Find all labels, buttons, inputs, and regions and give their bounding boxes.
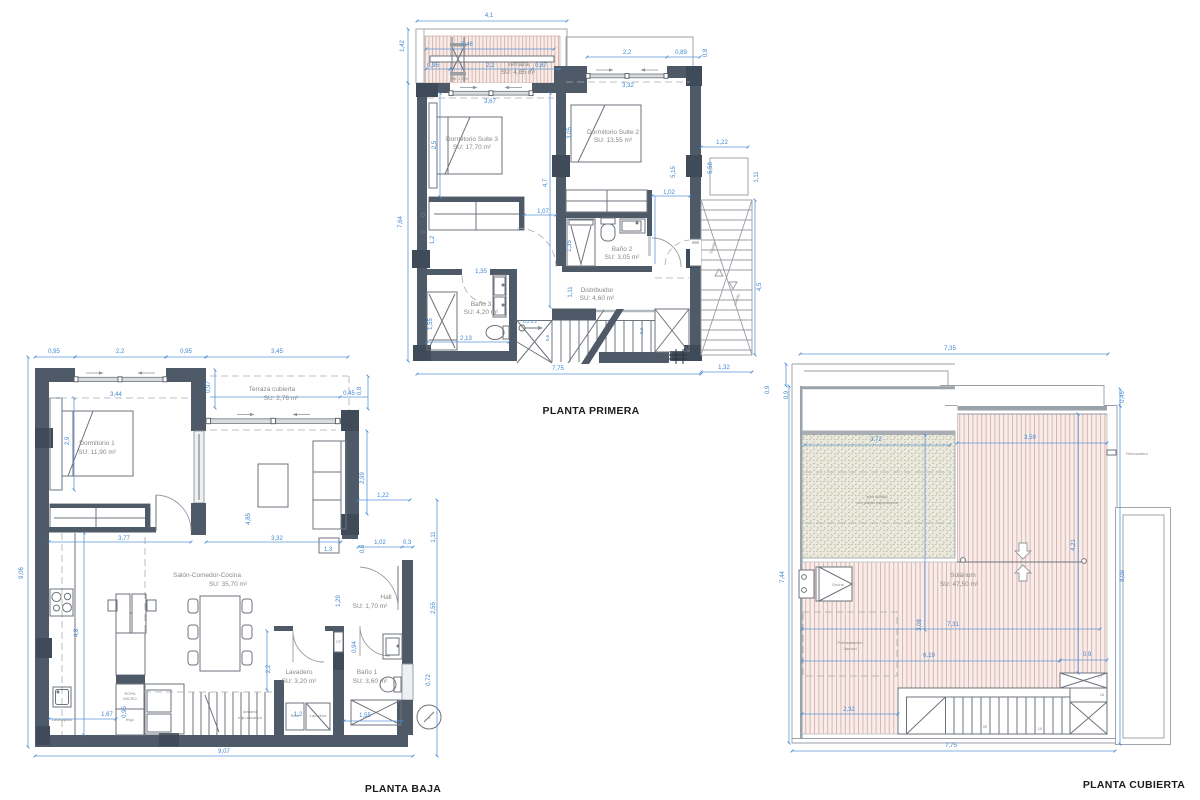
svg-text:3,32: 3,32 [622, 83, 634, 89]
svg-text:0,9: 0,9 [1083, 652, 1092, 658]
svg-text:0,94: 0,94 [352, 641, 358, 653]
svg-text:área edificio: área edificio [866, 494, 888, 499]
svg-text:SU: 47,50 m²: SU: 47,50 m² [940, 581, 979, 588]
svg-text:Salón-Comedor-Cocina: Salón-Comedor-Cocina [173, 572, 241, 579]
svg-text:5,15: 5,15 [671, 166, 677, 178]
svg-text:2,2: 2,2 [623, 50, 632, 56]
svg-text:2,2: 2,2 [266, 664, 272, 673]
svg-text:4,85: 4,85 [246, 513, 252, 525]
svg-text:8,09: 8,09 [1120, 570, 1126, 582]
svg-text:3,77: 3,77 [118, 536, 130, 542]
svg-text:0,6: 0,6 [360, 544, 366, 553]
svg-text:3,45: 3,45 [271, 349, 283, 355]
svg-text:0,2: 0,2 [639, 327, 644, 334]
svg-text:2,99: 2,99 [360, 472, 366, 484]
svg-text:Baño 3: Baño 3 [471, 301, 492, 308]
svg-text:0,2 0,2: 0,2 0,2 [523, 319, 537, 324]
svg-text:MICRO: MICRO [123, 696, 136, 701]
svg-text:10: 10 [1038, 726, 1043, 731]
svg-text:1,35: 1,35 [567, 240, 573, 252]
svg-text:3,08: 3,08 [917, 619, 923, 631]
svg-text:SU: 11,90 m²: SU: 11,90 m² [78, 449, 117, 456]
svg-text:Terraza: Terraza [507, 61, 529, 68]
svg-text:6,19: 6,19 [923, 653, 935, 659]
svg-text:Pte: 1,0%: Pte: 1,0% [450, 76, 468, 81]
svg-text:3,05: 3,05 [567, 127, 573, 139]
svg-text:Ducha: Ducha [832, 582, 844, 587]
svg-text:1,55: 1,55 [428, 318, 434, 330]
svg-text:0,9: 0,9 [784, 390, 790, 399]
svg-text:PLANTA CUBIERTA: PLANTA CUBIERTA [1083, 779, 1185, 791]
svg-text:Lavadero: Lavadero [285, 669, 312, 676]
svg-text:1,02: 1,02 [663, 190, 675, 196]
svg-text:1,35: 1,35 [475, 269, 487, 275]
svg-text:SU: 4,60 m²: SU: 4,60 m² [580, 295, 616, 302]
svg-text:PLANTA BAJA: PLANTA BAJA [365, 783, 441, 795]
svg-text:1,42: 1,42 [400, 40, 406, 52]
svg-text:SU: 3,60 m²: SU: 3,60 m² [353, 678, 389, 685]
svg-text:Lavavajillas: Lavavajillas [52, 717, 73, 722]
svg-text:1,55: 1,55 [359, 713, 371, 719]
svg-text:7,44: 7,44 [780, 571, 786, 583]
svg-text:2,5: 2,5 [432, 140, 438, 149]
svg-text:PLANTA PRIMERA: PLANTA PRIMERA [543, 405, 640, 417]
svg-text:4,8: 4,8 [74, 628, 80, 637]
svg-text:2,2: 2,2 [116, 349, 125, 355]
svg-text:CF: CF [336, 639, 342, 644]
svg-text:0,3: 0,3 [403, 540, 412, 546]
svg-text:Terraza cubierta: Terraza cubierta [249, 386, 296, 393]
svg-text:0,95: 0,95 [122, 706, 128, 718]
svg-text:SU: 17,70 m²: SU: 17,70 m² [453, 144, 492, 151]
svg-text:SU: 4,20 m²: SU: 4,20 m² [464, 309, 500, 316]
svg-text:SU: 4,85 m²: SU: 4,85 m² [501, 69, 537, 76]
svg-text:0,72: 0,72 [426, 674, 432, 686]
svg-text:7,31: 7,31 [947, 622, 959, 628]
svg-text:3,67: 3,67 [484, 99, 496, 105]
svg-text:0,45: 0,45 [343, 391, 355, 397]
svg-text:1,29: 1,29 [336, 595, 342, 607]
svg-text:Lavadora: Lavadora [310, 713, 327, 718]
svg-text:Solárium: Solárium [950, 572, 976, 579]
svg-text:bajo escalera: bajo escalera [238, 715, 263, 720]
svg-text:4,21: 4,21 [1071, 539, 1077, 551]
svg-text:Baño 2: Baño 2 [612, 246, 633, 253]
svg-text:SU: 1,70 m²: SU: 1,70 m² [353, 603, 389, 610]
svg-text:3,46: 3,46 [461, 42, 473, 48]
svg-text:Preinstalación: Preinstalación [837, 640, 862, 645]
svg-text:4,5: 4,5 [757, 282, 763, 291]
svg-text:2,32: 2,32 [843, 707, 855, 713]
svg-text:1,67: 1,67 [101, 712, 113, 718]
svg-text:1,32: 1,32 [718, 365, 730, 371]
svg-text:SU: 2,76 m²: SU: 2,76 m² [264, 395, 300, 402]
svg-text:armario: armario [243, 709, 257, 714]
svg-text:3,32: 3,32 [271, 536, 283, 542]
svg-text:0,45: 0,45 [1120, 391, 1126, 403]
svg-text:2,55: 2,55 [431, 602, 437, 614]
svg-text:0,8: 0,8 [357, 386, 363, 395]
svg-text:17: 17 [1098, 674, 1103, 679]
svg-text:1,2: 1,2 [430, 235, 436, 244]
svg-text:SU: 13,55 m²: SU: 13,55 m² [594, 137, 633, 144]
svg-text:7,75: 7,75 [552, 366, 564, 372]
svg-text:1,11: 1,11 [568, 286, 574, 298]
svg-text:7,75: 7,75 [945, 743, 957, 749]
svg-text:0,97: 0,97 [206, 381, 212, 393]
svg-text:2,2: 2,2 [486, 63, 495, 69]
svg-text:0,95: 0,95 [427, 63, 439, 69]
svg-text:2,9: 2,9 [65, 436, 71, 445]
svg-text:1,22: 1,22 [716, 140, 728, 146]
svg-text:4,1: 4,1 [485, 13, 494, 19]
svg-text:0,9: 0,9 [765, 385, 771, 394]
svg-text:3,59: 3,59 [1024, 435, 1036, 441]
svg-text:SU: 3,05 m²: SU: 3,05 m² [605, 254, 641, 261]
svg-text:0,6: 0,6 [545, 334, 550, 341]
svg-text:0,89: 0,89 [675, 50, 687, 56]
svg-text:4,7: 4,7 [543, 178, 549, 187]
svg-text:Distribuidor: Distribuidor [581, 287, 615, 294]
svg-text:0,87: 0,87 [535, 63, 547, 69]
svg-text:Baño 1: Baño 1 [357, 669, 378, 676]
svg-text:Rebosadero: Rebosadero [1126, 451, 1149, 456]
svg-text:9,06: 9,06 [19, 567, 25, 579]
svg-text:Jacuzzi: Jacuzzi [843, 646, 856, 651]
svg-text:7,35: 7,35 [944, 346, 956, 352]
svg-text:1,07: 1,07 [537, 209, 549, 215]
svg-text:0,95: 0,95 [48, 349, 60, 355]
svg-text:05: 05 [983, 724, 988, 729]
svg-text:0,95: 0,95 [180, 349, 192, 355]
svg-text:5,58: 5,58 [708, 162, 714, 174]
svg-text:7,64: 7,64 [398, 216, 404, 228]
svg-text:A: A [428, 715, 431, 720]
svg-text:Hall: Hall [380, 594, 392, 601]
svg-text:3,44: 3,44 [110, 392, 122, 398]
svg-text:Dormitorio Suite 2: Dormitorio Suite 2 [587, 129, 639, 136]
svg-text:2,13: 2,13 [460, 336, 472, 342]
svg-text:Dormitorio 1: Dormitorio 1 [79, 440, 115, 447]
svg-text:1,02: 1,02 [374, 540, 386, 546]
svg-text:16: 16 [1100, 692, 1105, 697]
svg-text:1,22: 1,22 [377, 493, 389, 499]
svg-text:1,2: 1,2 [294, 712, 303, 718]
svg-text:1,11: 1,11 [754, 171, 760, 183]
svg-text:1,11: 1,11 [431, 531, 437, 543]
svg-text:9,07: 9,07 [218, 749, 230, 755]
svg-text:Dormitorio Suite 3: Dormitorio Suite 3 [446, 136, 498, 143]
svg-text:SU: 3,20 m²: SU: 3,20 m² [282, 678, 318, 685]
svg-text:3,72: 3,72 [870, 437, 882, 443]
svg-text:0,8: 0,8 [703, 48, 709, 57]
svg-text:1,3: 1,3 [324, 547, 333, 553]
svg-text:SU: 35,70 m²: SU: 35,70 m² [209, 581, 248, 588]
svg-text:con planta bajocubierta: con planta bajocubierta [856, 500, 898, 505]
